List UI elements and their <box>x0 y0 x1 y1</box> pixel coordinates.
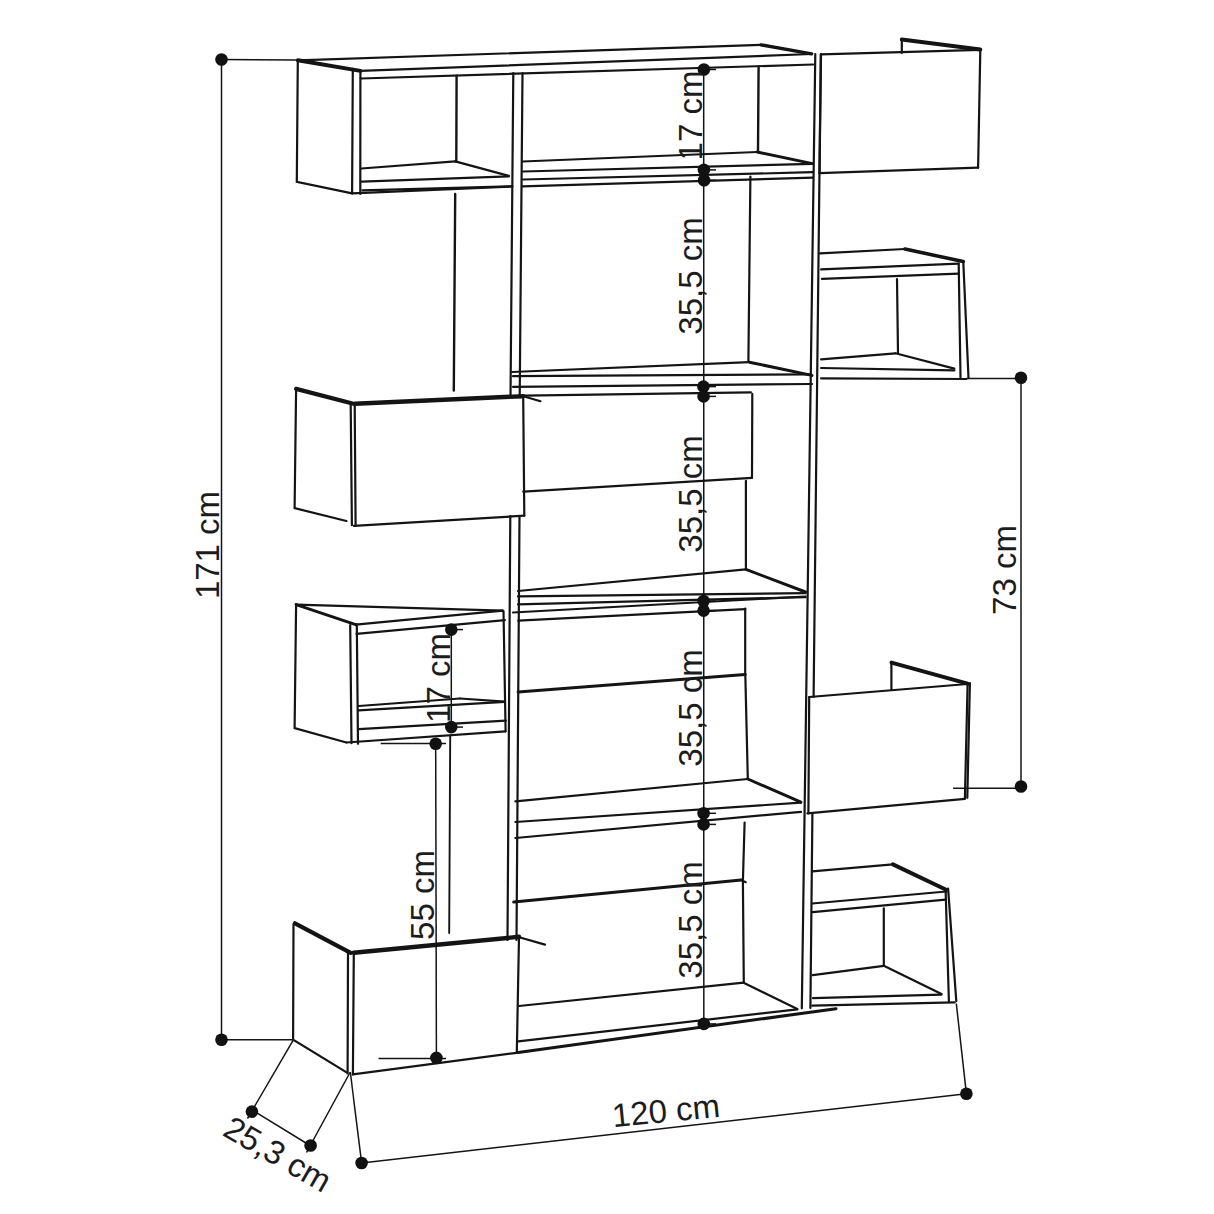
svg-text:35,5 cm: 35,5 cm <box>672 649 709 766</box>
svg-text:55 cm: 55 cm <box>404 850 441 940</box>
svg-text:17 cm: 17 cm <box>420 633 457 723</box>
svg-text:35,5 cm: 35,5 cm <box>672 217 709 334</box>
svg-text:17 cm: 17 cm <box>672 71 709 161</box>
svg-text:171 cm: 171 cm <box>189 491 226 599</box>
svg-text:35,5 cm: 35,5 cm <box>672 861 709 978</box>
svg-text:35,5 cm: 35,5 cm <box>672 435 709 552</box>
svg-text:73 cm: 73 cm <box>986 525 1023 615</box>
